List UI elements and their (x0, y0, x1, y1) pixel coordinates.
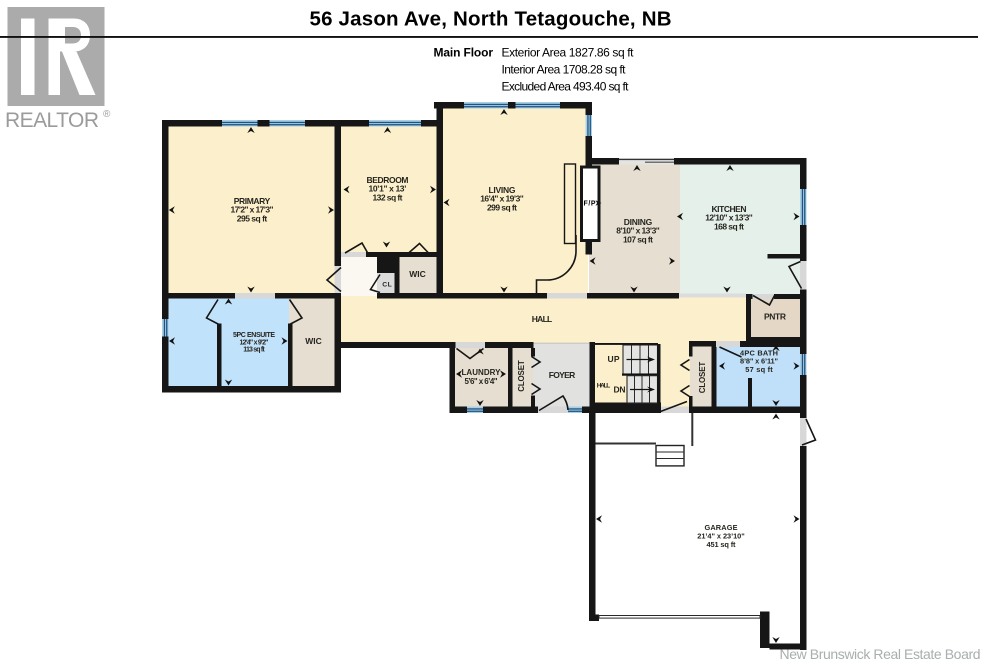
svg-text:57 sq ft: 57 sq ft (745, 365, 773, 374)
svg-text:UP: UP (608, 354, 620, 364)
svg-text:295 sq ft: 295 sq ft (237, 213, 268, 223)
svg-text:CL: CL (382, 282, 392, 289)
svg-text:Interior Area 1708.28 sq ft: Interior Area 1708.28 sq ft (502, 63, 627, 77)
svg-text:WIC: WIC (305, 336, 322, 346)
svg-text:451 sq ft: 451 sq ft (707, 540, 737, 549)
svg-text:F/P: F/P (584, 201, 596, 208)
svg-text:New Brunswick Real Estate Boar: New Brunswick Real Estate Board (780, 646, 981, 662)
svg-text:DN: DN (614, 385, 626, 395)
svg-text:Exterior Area 1827.86 sq ft: Exterior Area 1827.86 sq ft (502, 46, 635, 60)
svg-text:®: ® (103, 109, 111, 120)
svg-text:56 Jason Ave, North Tetagouche: 56 Jason Ave, North Tetagouche, NB (310, 8, 672, 31)
svg-text:PNTR: PNTR (764, 312, 786, 322)
svg-text:5’6" x 6’4": 5’6" x 6’4" (465, 377, 498, 386)
svg-text:113 sq ft: 113 sq ft (243, 347, 265, 354)
svg-text:CLOSET: CLOSET (517, 360, 526, 392)
svg-text:299 sq ft: 299 sq ft (487, 202, 517, 212)
svg-text:12’4" x 9’2": 12’4" x 9’2" (240, 339, 269, 346)
svg-text:107 sq ft: 107 sq ft (623, 234, 653, 244)
svg-text:HALL: HALL (532, 314, 553, 324)
svg-text:Excluded Area 493.40 sq ft: Excluded Area 493.40 sq ft (502, 80, 630, 94)
svg-text:FOYER: FOYER (549, 370, 576, 380)
svg-text:CLOSET: CLOSET (698, 362, 707, 394)
svg-text:132 sq ft: 132 sq ft (373, 192, 403, 202)
svg-text:Main Floor: Main Floor (434, 46, 494, 60)
svg-text:LAUNDRY: LAUNDRY (462, 368, 502, 377)
svg-text:5PC ENSUITE: 5PC ENSUITE (233, 332, 275, 339)
svg-text:WIC: WIC (409, 269, 426, 279)
svg-text:168 sq ft: 168 sq ft (714, 221, 744, 231)
svg-text:HALL: HALL (597, 383, 611, 390)
svg-text:REALTOR: REALTOR (5, 109, 99, 132)
